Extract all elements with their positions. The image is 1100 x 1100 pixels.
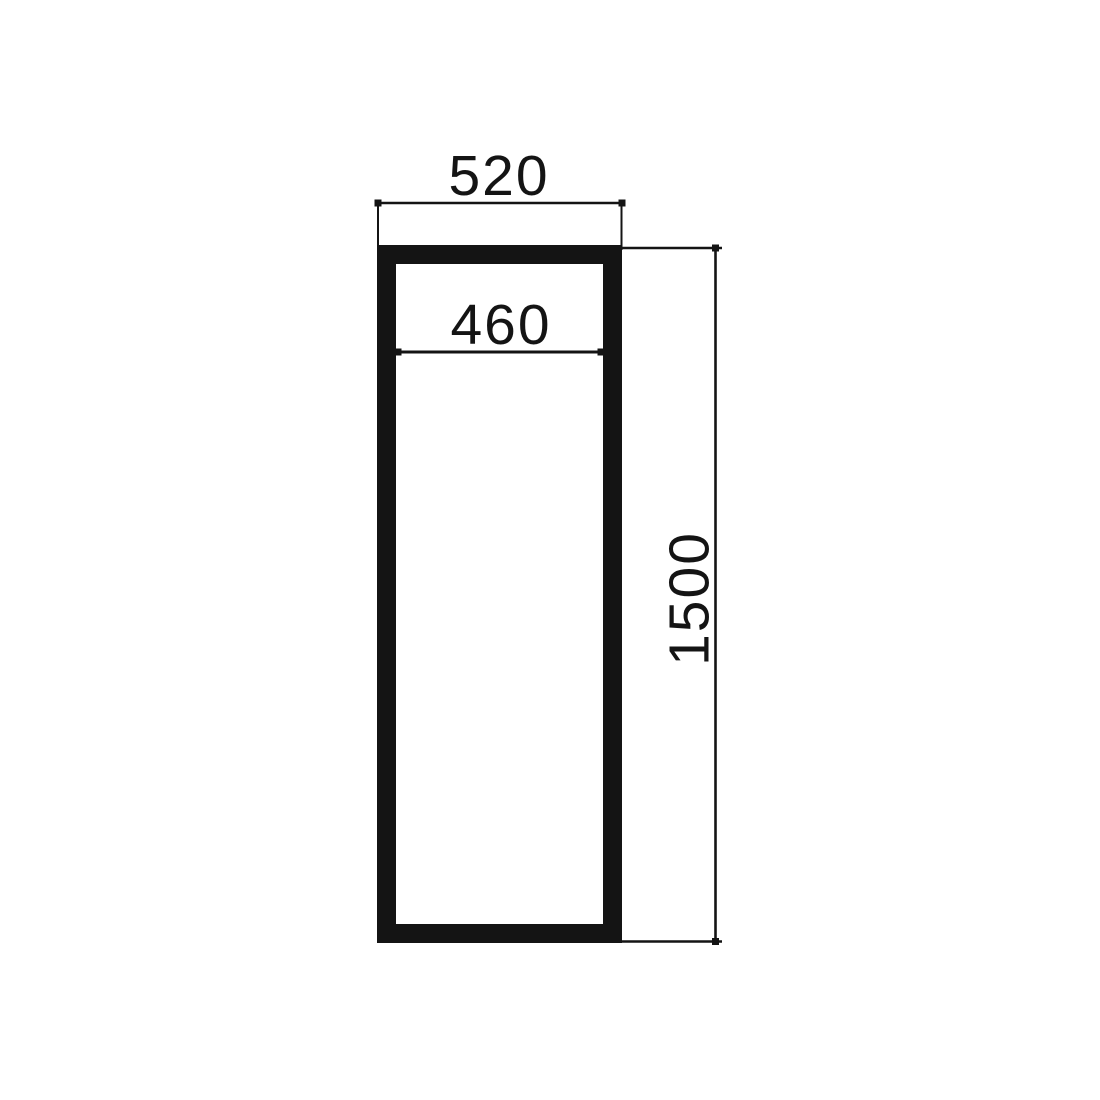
dim-endpoint-dot (375, 200, 382, 207)
dim-endpoint-dot (619, 200, 626, 207)
dim-label-inner-width: 460 (431, 297, 571, 354)
dim-endpoint-dot (395, 349, 402, 356)
dim-label-height: 1500 (662, 519, 719, 679)
dim-label-top-width: 520 (429, 148, 569, 205)
dimension-drawing-canvas: 520 460 1500 (0, 0, 1100, 1100)
dim-endpoint-dot (598, 349, 605, 356)
dim-endpoint-dot (712, 938, 719, 945)
dim-endpoint-dot (712, 245, 719, 252)
